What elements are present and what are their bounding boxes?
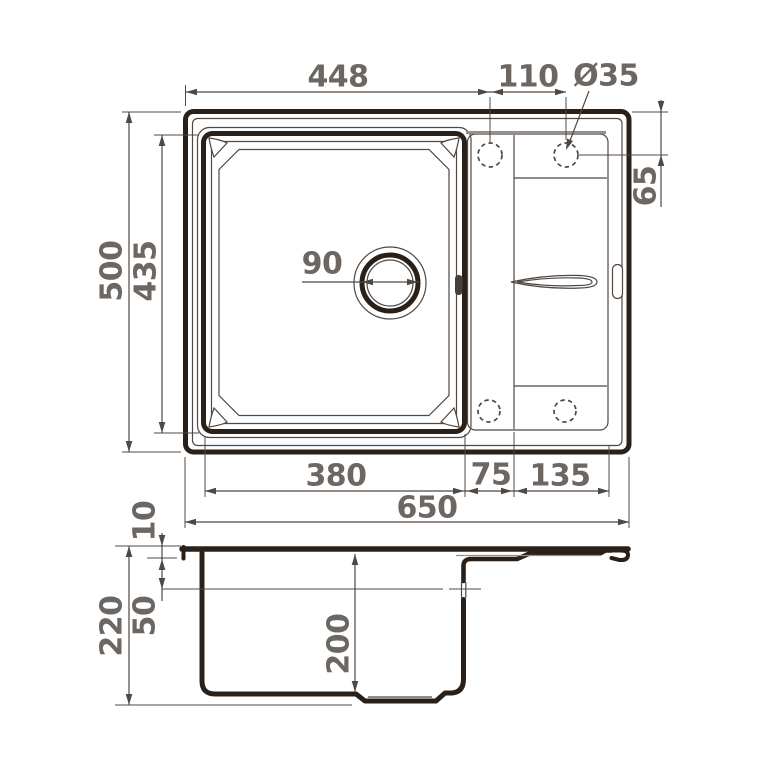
dim-label-50: 50 <box>128 596 163 637</box>
dim-label-435: 435 <box>129 240 164 301</box>
dim-label-65: 65 <box>629 166 664 207</box>
overflow-tab <box>455 275 463 295</box>
dim-label-500: 500 <box>95 240 130 301</box>
dim-200: 200 <box>322 554 359 692</box>
faucet-hole-left <box>478 143 502 167</box>
dim-label-380: 380 <box>305 459 366 494</box>
technical-drawing-page: 448 110 Ø35 65 500 <box>0 0 768 768</box>
dim-label-448: 448 <box>307 60 368 95</box>
dim-380-75-135: 380 75 135 <box>205 432 609 497</box>
knockout-hole-left <box>478 400 500 422</box>
dim-65: 65 <box>579 100 668 207</box>
dim-label-10: 10 <box>128 501 163 542</box>
dim-label-650: 650 <box>396 491 457 526</box>
drain-outer-circle <box>354 247 426 319</box>
drain-groove-outer <box>511 275 597 288</box>
dim-label-135: 135 <box>529 459 590 494</box>
dim-label-200: 200 <box>322 613 357 674</box>
faucet-hole-right <box>554 143 578 167</box>
knockout-hole-right <box>554 400 576 422</box>
dim-label-75: 75 <box>471 458 512 493</box>
drain-inner-circle <box>367 260 413 306</box>
drainboard <box>466 133 623 431</box>
wing-handle-slot <box>613 265 623 299</box>
dim-label-110: 110 <box>497 60 558 95</box>
dim-10-50: 10 50 <box>128 501 178 637</box>
dim-label-90: 90 <box>302 247 343 282</box>
dim-448-110: 448 110 <box>186 60 567 143</box>
dim-435: 435 <box>129 135 200 433</box>
dim-label-220: 220 <box>95 595 130 656</box>
dim-label-o35: Ø35 <box>573 59 639 94</box>
section-view: 10 50 220 200 <box>95 501 629 705</box>
top-view: 448 110 Ø35 65 500 <box>95 59 669 529</box>
rim-right-end-hook <box>610 551 628 561</box>
sink-dimension-drawing: 448 110 Ø35 65 500 <box>0 0 768 768</box>
